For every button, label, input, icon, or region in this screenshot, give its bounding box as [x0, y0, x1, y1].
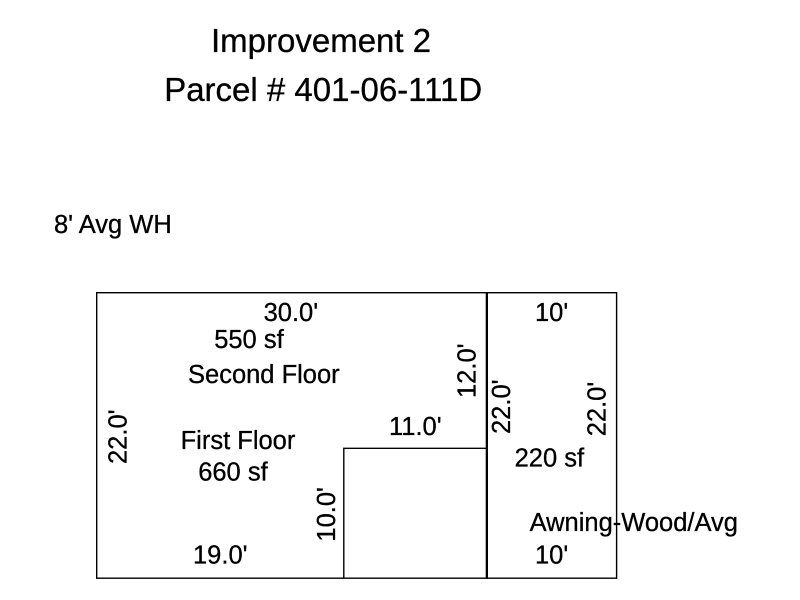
svg-text:11.0': 11.0'	[389, 413, 442, 441]
svg-text:19.0': 19.0'	[193, 542, 248, 570]
svg-text:Parcel # 401-06-111D: Parcel # 401-06-111D	[164, 71, 482, 108]
svg-text:10.0': 10.0'	[313, 487, 341, 542]
svg-text:22.0': 22.0'	[488, 380, 516, 435]
svg-text:12.0': 12.0'	[454, 344, 482, 399]
svg-text:22.0': 22.0'	[584, 382, 612, 437]
svg-text:10': 10'	[535, 299, 568, 327]
svg-text:Improvement 2: Improvement 2	[211, 22, 431, 59]
svg-text:220 sf: 220 sf	[515, 445, 585, 473]
svg-text:Second Floor: Second Floor	[188, 361, 340, 389]
svg-text:550 sf: 550 sf	[214, 326, 284, 354]
svg-text:22.0': 22.0'	[105, 410, 133, 465]
svg-text:660 sf: 660 sf	[198, 458, 268, 486]
svg-text:10': 10'	[535, 542, 568, 570]
svg-text:30.0': 30.0'	[264, 299, 319, 327]
svg-text:Awning-Wood/Avg: Awning-Wood/Avg	[530, 509, 738, 537]
svg-text:8' Avg WH: 8' Avg WH	[54, 211, 172, 239]
svg-text:First Floor: First Floor	[181, 427, 296, 455]
